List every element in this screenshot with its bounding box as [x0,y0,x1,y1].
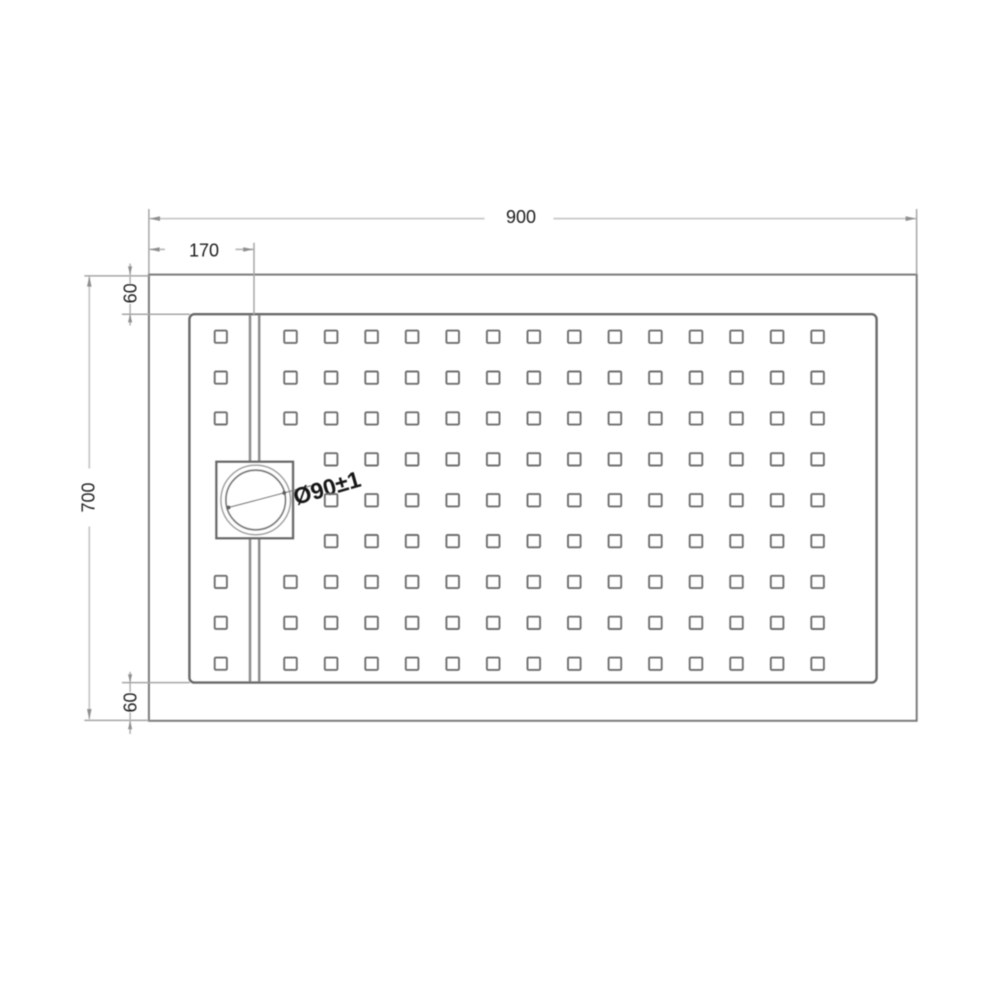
svg-text:700: 700 [79,482,99,512]
svg-text:Ø90±1: Ø90±1 [290,466,364,510]
svg-text:60: 60 [121,692,141,712]
svg-text:60: 60 [121,283,141,303]
svg-text:900: 900 [506,207,536,227]
svg-text:170: 170 [189,241,219,261]
